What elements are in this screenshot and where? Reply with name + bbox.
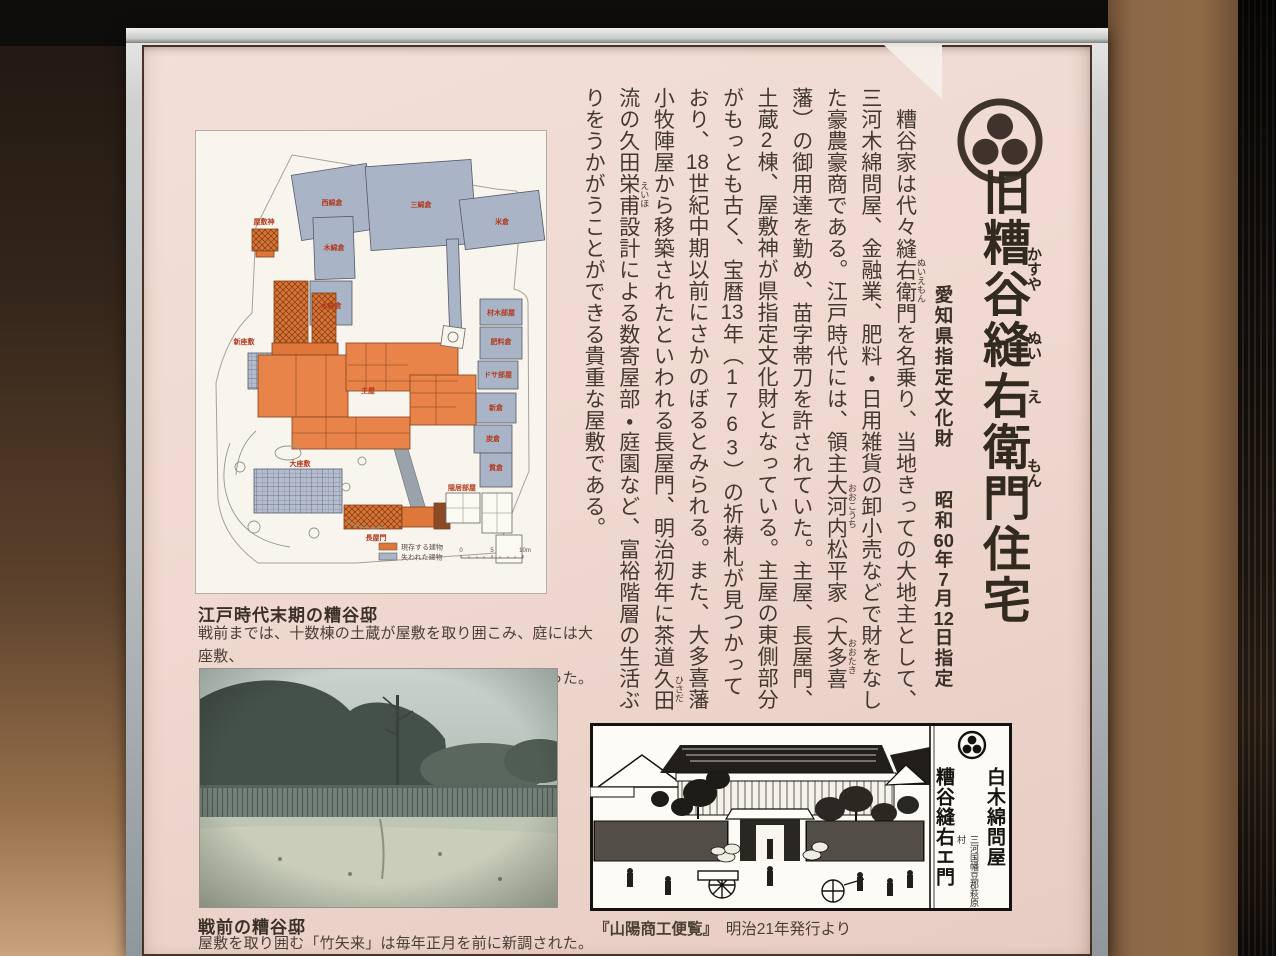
legend-label-lost: 失われた建物 (401, 553, 443, 562)
floor-plan-figure: 現存する建物 失われた建物 0 5 10m 西綿倉三綿倉米倉木綿倉木綿倉屋敷神新… (196, 131, 546, 593)
plan-building-label: 材木部屋 (486, 308, 515, 317)
photo-caption: 屋敷を取り囲む「竹矢来」は毎年正月を前に新調された。 (198, 933, 618, 956)
woodblock-print-figure: 糟谷縫右エ門 三河国幡豆郡萩原村 白木綿問屋 (590, 723, 1012, 911)
main-body-text: 糟谷家は代々縫右衛門ぬいえもんを名乗り、当地きっての大地主として、三河木綿問屋、… (574, 87, 926, 715)
plan-building-label: 新倉 (488, 403, 503, 412)
legend-label-existing: 現存する建物 (401, 543, 443, 552)
plan-caption-line1: 戦前までは、十数棟の土蔵が屋敷を取り囲こみ、庭には大座敷、 (198, 625, 593, 665)
wood-post-right (1108, 0, 1242, 956)
plan-building-label: 新座敷 (233, 337, 256, 346)
plan-building-label: 木綿倉 (320, 301, 342, 310)
print-shop-panel: 糟谷縫右エ門 三河国幡豆郡萩原村 白木綿問屋 (932, 727, 1006, 907)
plan-building-label: 木綿倉 (323, 243, 345, 252)
wood-lattice-right (1238, 0, 1276, 956)
legend-swatch-existing (379, 543, 397, 550)
plan-building-label: 西綿倉 (322, 198, 343, 207)
print-owner-name: 糟谷縫右エ門 (930, 767, 957, 907)
sign-board: 旧糟谷かすや縫ぬい右え衛門もん住宅 愛知県指定文化財 昭和60年7月12日指定 … (126, 28, 1108, 956)
plan-building-label: 大座敷 (290, 459, 312, 468)
plan-building-label: 質倉 (489, 463, 503, 472)
plan-building-label: 隠居部屋 (448, 483, 476, 492)
plan-building-label: 主屋 (361, 386, 375, 395)
prewar-photo-figure (200, 669, 557, 907)
plan-building-label: 肥料倉 (490, 337, 512, 346)
print-caption-rest: 明治21年発行より (710, 921, 851, 938)
plan-building-label: ドサ部屋 (484, 370, 512, 379)
print-caption: 『山陽商工便覧』 明治21年発行より (594, 917, 851, 939)
plan-building-label: 米倉 (494, 217, 509, 226)
plan-building-label: 長屋門 (366, 533, 387, 542)
plan-building-label: 三綿倉 (411, 200, 432, 209)
print-address: 三河国幡豆郡萩原村 (955, 835, 981, 907)
print-caption-title: 『山陽商工便覧』 (594, 921, 710, 938)
page-title: 旧糟谷かすや縫ぬい右え衛門もん住宅 (966, 167, 1042, 727)
scale-tick: 10m (519, 548, 531, 554)
sign-paper: 旧糟谷かすや縫ぬい右え衛門もん住宅 愛知県指定文化財 昭和60年7月12日指定 … (142, 45, 1092, 956)
legend-swatch-lost (379, 553, 397, 560)
plan-building-label: 屋敷神 (254, 217, 275, 226)
plan-building-label: 炭倉 (486, 434, 500, 443)
prewar-photo (200, 669, 557, 907)
floor-plan-map: 現存する建物 失われた建物 0 5 10m 西綿倉三綿倉米倉木綿倉木綿倉屋敷神新… (196, 131, 546, 593)
print-shop-name: 白木綿問屋 (981, 767, 1008, 907)
